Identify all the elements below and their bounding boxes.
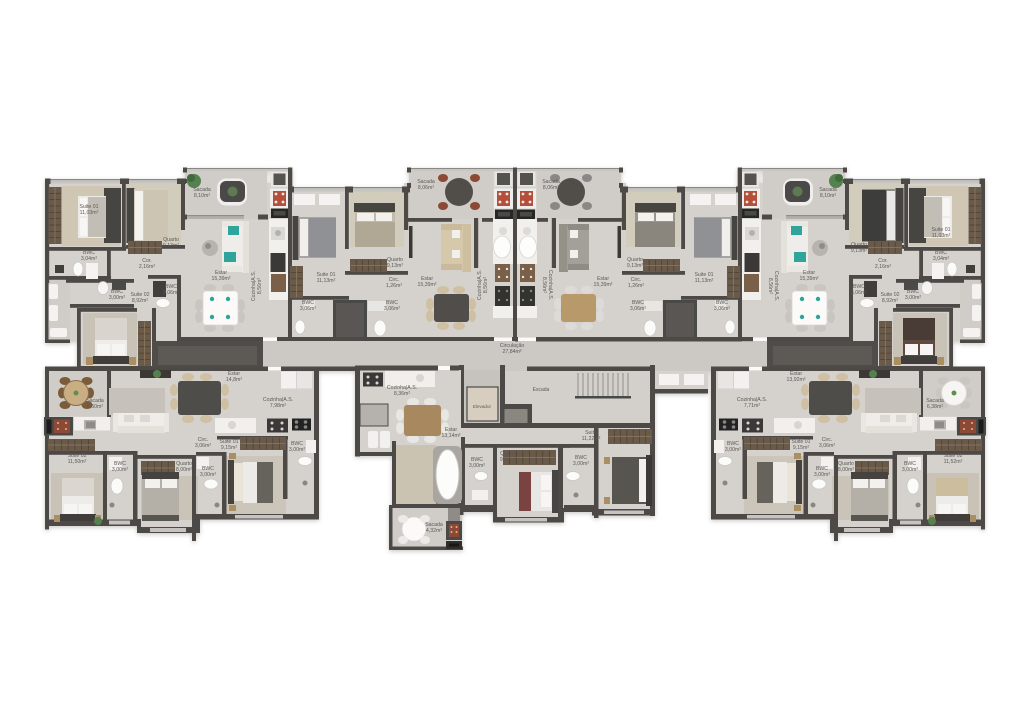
- svg-text:Suite 028,92m²: Suite 028,92m²: [130, 292, 149, 304]
- svg-text:Suite 028,92m²: Suite 028,92m²: [880, 292, 899, 304]
- svg-text:BWC3,00m²: BWC3,00m²: [109, 289, 125, 301]
- svg-text:Quarto9,13m²: Quarto9,13m²: [387, 257, 403, 269]
- svg-text:Sacada8,10m²: Sacada8,10m²: [193, 187, 211, 199]
- svg-text:BWC3,06m²: BWC3,06m²: [384, 300, 400, 312]
- svg-text:BWC3,00m²: BWC3,00m²: [814, 466, 830, 478]
- svg-text:BWC3,06m²: BWC3,06m²: [851, 284, 867, 296]
- svg-text:Suite 0111,13m²: Suite 0111,13m²: [694, 272, 713, 284]
- svg-text:Suite 0211,52m²: Suite 0211,52m²: [943, 453, 962, 465]
- svg-text:Elevador: Elevador: [473, 404, 492, 409]
- svg-text:Suite 0111,03m²: Suite 0111,03m²: [79, 204, 98, 216]
- svg-text:Suite 0111,03m²: Suite 0111,03m²: [931, 227, 950, 239]
- svg-text:Sacada6,50m²: Sacada6,50m²: [86, 398, 104, 410]
- svg-text:Suite 019,15m²: Suite 019,15m²: [219, 439, 238, 451]
- svg-text:Sacada8,06m²: Sacada8,06m²: [542, 179, 560, 191]
- svg-text:Sacada8,06m²: Sacada8,06m²: [417, 179, 435, 191]
- svg-text:Suite 019,15m²: Suite 019,15m²: [791, 439, 810, 451]
- svg-text:Estar14,8m²: Estar14,8m²: [226, 371, 242, 383]
- svg-text:Suite 0211,50m²: Suite 0211,50m²: [67, 453, 86, 465]
- svg-text:BWC3,00m²: BWC3,00m²: [112, 461, 128, 473]
- svg-text:Quarto9,13m²: Quarto9,13m²: [851, 242, 867, 254]
- svg-text:Quarto8,00m²: Quarto8,00m²: [176, 461, 192, 473]
- svg-text:BWC3,00m²: BWC3,00m²: [905, 289, 921, 301]
- svg-text:BWC3,00m²: BWC3,00m²: [289, 441, 305, 453]
- svg-text:Sacada4,32m²: Sacada4,32m²: [425, 522, 443, 534]
- svg-text:BWC3,00m²: BWC3,00m²: [200, 466, 216, 478]
- svg-text:BWC3,00m²: BWC3,00m²: [573, 455, 589, 467]
- svg-text:BWC3,06m²: BWC3,06m²: [714, 300, 730, 312]
- svg-text:Quarto9,13m²: Quarto9,13m²: [163, 237, 179, 249]
- svg-text:Quarto9,13m²: Quarto9,13m²: [627, 257, 643, 269]
- svg-text:BWC3,06m²: BWC3,06m²: [300, 300, 316, 312]
- svg-text:BWC3,00m²: BWC3,00m²: [725, 441, 741, 453]
- svg-text:BWC3,04m²: BWC3,04m²: [81, 250, 97, 262]
- svg-text:Quarto9,00m²: Quarto9,00m²: [500, 451, 516, 463]
- svg-text:Sacada6,38m²: Sacada6,38m²: [926, 398, 944, 410]
- svg-text:BWC3,06m²: BWC3,06m²: [630, 300, 646, 312]
- svg-text:BWC3,06m²: BWC3,06m²: [163, 284, 179, 296]
- svg-text:BWC3,00m²: BWC3,00m²: [469, 457, 485, 469]
- svg-text:Circulação27,84m²: Circulação27,84m²: [500, 343, 525, 355]
- svg-text:BWC3,04m²: BWC3,04m²: [933, 250, 949, 262]
- svg-text:Suite 0111,13m²: Suite 0111,13m²: [316, 272, 335, 284]
- svg-text:Sacada8,10m²: Sacada8,10m²: [819, 187, 837, 199]
- svg-text:Quarto8,00m²: Quarto8,00m²: [838, 461, 854, 473]
- svg-text:Escada: Escada: [533, 387, 550, 393]
- svg-text:BWC3,00m²: BWC3,00m²: [902, 461, 918, 473]
